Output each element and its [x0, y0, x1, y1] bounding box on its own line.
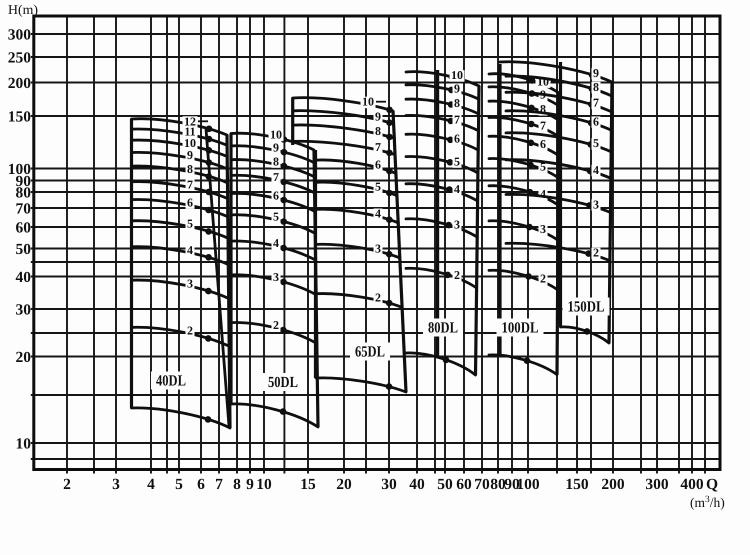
- svg-text:8: 8: [273, 154, 279, 168]
- svg-text:50DL: 50DL: [268, 374, 298, 391]
- svg-text:5: 5: [175, 476, 183, 493]
- svg-text:3: 3: [454, 218, 460, 232]
- svg-text:40: 40: [16, 269, 32, 286]
- svg-text:4: 4: [147, 476, 155, 493]
- svg-text:70: 70: [16, 201, 32, 218]
- svg-text:3: 3: [375, 241, 381, 255]
- svg-text:100: 100: [516, 476, 540, 493]
- svg-text:3: 3: [112, 476, 120, 493]
- svg-text:7: 7: [273, 170, 279, 184]
- svg-text:8: 8: [593, 80, 599, 94]
- svg-text:6: 6: [273, 188, 279, 202]
- svg-text:65DL: 65DL: [355, 344, 385, 361]
- svg-text:15: 15: [300, 476, 316, 493]
- svg-text:4: 4: [593, 163, 599, 177]
- svg-text:8: 8: [233, 476, 241, 493]
- svg-text:7: 7: [375, 140, 381, 154]
- svg-text:300: 300: [8, 27, 32, 44]
- svg-text:80: 80: [16, 185, 32, 202]
- svg-text:300: 300: [645, 476, 669, 493]
- svg-text:10: 10: [256, 476, 272, 493]
- svg-text:5: 5: [187, 217, 193, 231]
- svg-text:5: 5: [273, 210, 279, 224]
- svg-text:8: 8: [187, 162, 193, 176]
- svg-text:2: 2: [540, 272, 546, 286]
- svg-text:9: 9: [375, 110, 381, 124]
- svg-text:5: 5: [375, 180, 381, 194]
- svg-text:70: 70: [474, 476, 490, 493]
- svg-text:60: 60: [456, 476, 472, 493]
- svg-text:150DL: 150DL: [568, 299, 605, 316]
- svg-text:2: 2: [187, 324, 193, 338]
- svg-text:6: 6: [197, 476, 205, 493]
- svg-text:80DL: 80DL: [428, 320, 458, 337]
- svg-text:7: 7: [593, 96, 599, 110]
- svg-text:30: 30: [381, 476, 397, 493]
- svg-text:9: 9: [187, 148, 193, 162]
- svg-text:4: 4: [273, 236, 279, 250]
- svg-text:60: 60: [16, 220, 32, 237]
- svg-text:9: 9: [246, 476, 254, 493]
- svg-text:20: 20: [16, 349, 32, 366]
- svg-text:4: 4: [375, 207, 381, 221]
- svg-text:50: 50: [16, 241, 32, 258]
- svg-text:10: 10: [362, 95, 374, 109]
- svg-text:9: 9: [593, 66, 599, 80]
- svg-text:6: 6: [187, 195, 193, 209]
- svg-text:3: 3: [273, 270, 279, 284]
- svg-text:4: 4: [454, 182, 460, 196]
- svg-text:50: 50: [437, 476, 453, 493]
- svg-text:9: 9: [273, 140, 279, 154]
- svg-text:7: 7: [454, 113, 460, 127]
- svg-text:10: 10: [16, 436, 32, 453]
- svg-text:8: 8: [454, 96, 460, 110]
- svg-text:400: 400: [680, 476, 704, 493]
- svg-text:150: 150: [565, 476, 589, 493]
- svg-text:250: 250: [8, 50, 32, 67]
- svg-text:8: 8: [375, 124, 381, 138]
- svg-text:150: 150: [8, 109, 32, 126]
- svg-text:30: 30: [16, 302, 32, 319]
- svg-text:H(m): H(m): [8, 2, 38, 17]
- svg-text:40: 40: [409, 476, 425, 493]
- svg-text:10: 10: [451, 68, 463, 82]
- svg-text:7: 7: [187, 177, 193, 191]
- svg-text:4: 4: [187, 243, 193, 257]
- svg-text:2: 2: [273, 318, 279, 332]
- svg-text:5: 5: [454, 154, 460, 168]
- svg-text:6: 6: [375, 158, 381, 172]
- svg-text:7: 7: [215, 476, 223, 493]
- svg-text:40DL: 40DL: [156, 373, 186, 390]
- svg-text:200: 200: [8, 75, 32, 92]
- svg-text:4: 4: [540, 187, 546, 201]
- svg-text:9: 9: [454, 81, 460, 95]
- svg-text:5: 5: [593, 136, 599, 150]
- svg-text:6: 6: [454, 132, 460, 146]
- svg-text:6: 6: [540, 137, 546, 151]
- svg-text:100DL: 100DL: [502, 320, 539, 337]
- svg-text:3: 3: [540, 222, 546, 236]
- svg-text:3: 3: [593, 197, 599, 211]
- svg-text:20: 20: [336, 476, 352, 493]
- svg-text:2: 2: [63, 476, 71, 493]
- svg-text:7: 7: [540, 118, 546, 132]
- svg-text:2: 2: [375, 290, 381, 304]
- svg-text:200: 200: [601, 476, 625, 493]
- svg-text:6: 6: [593, 114, 599, 128]
- svg-text:Q: Q: [706, 476, 718, 493]
- svg-text:3: 3: [187, 276, 193, 290]
- svg-text:2: 2: [593, 246, 599, 260]
- svg-text:2: 2: [454, 268, 460, 282]
